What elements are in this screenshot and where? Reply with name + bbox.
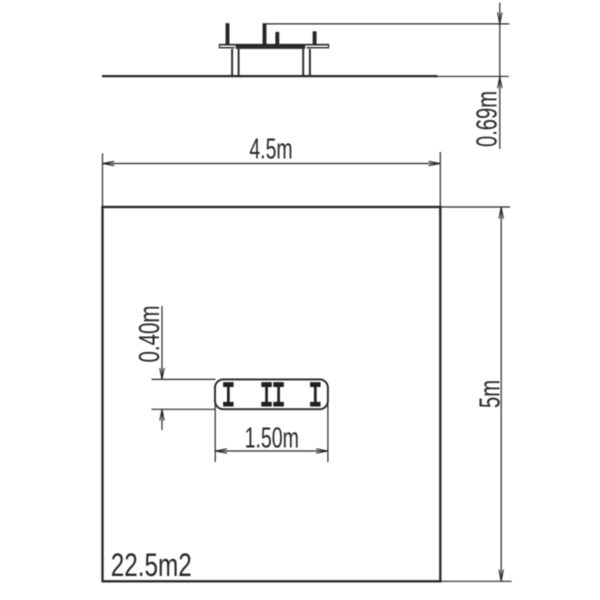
svg-text:0.40m: 0.40m [134,306,166,363]
svg-text:4.5m: 4.5m [249,134,292,166]
svg-text:22.5m2: 22.5m2 [111,547,192,583]
svg-text:1.50m: 1.50m [245,422,299,454]
svg-text:5m: 5m [475,380,507,408]
svg-text:0.69m: 0.69m [471,91,503,147]
